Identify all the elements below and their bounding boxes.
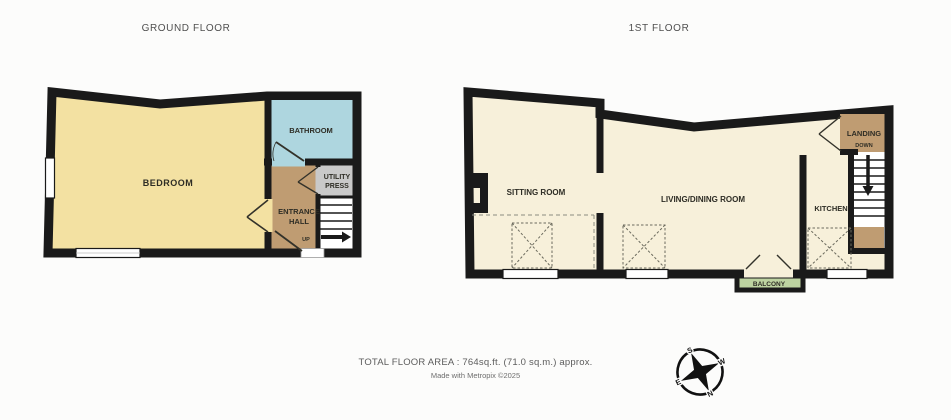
stairs-down-label: DOWN xyxy=(855,143,872,149)
living-room-window xyxy=(626,270,668,279)
sitting-room-label: SITTING ROOM xyxy=(507,188,566,197)
total-floor-area-text: TOTAL FLOOR AREA : 764sq.ft. (71.0 sq.m.… xyxy=(0,357,951,368)
landing-label: LANDING xyxy=(847,129,881,138)
stairs-winder xyxy=(854,227,884,251)
stairs-up-label: UP xyxy=(302,237,310,243)
credit-text: Made with Metropix ©2025 xyxy=(0,371,951,380)
floorplan-page: GROUND FLOOR 1ST FLOOR xyxy=(0,0,951,420)
bathroom-label: BATHROOM xyxy=(289,126,333,135)
first-floor-title: 1ST FLOOR xyxy=(629,23,690,34)
utility-press-label-line1: UTILITY xyxy=(324,174,351,181)
sitting-room-window xyxy=(503,270,558,279)
entrance-hall-room xyxy=(265,162,319,249)
living-dining-label: LIVING/DINING ROOM xyxy=(661,195,745,204)
balcony-label: BALCONY xyxy=(753,281,786,288)
entrance-hall-label-line2: HALL xyxy=(289,217,309,226)
kitchen-window xyxy=(827,270,867,279)
kitchen-label: KITCHEN xyxy=(814,204,847,213)
ground-floor-title: GROUND FLOOR xyxy=(142,23,231,34)
bedroom-side-window xyxy=(46,158,55,198)
ground-floor-plan: BEDROOM BATHROOM ENTRANCE HALL UTILITY P… xyxy=(38,82,374,264)
entrance-hall-label-line1: ENTRANCE xyxy=(278,207,320,216)
bedroom-label: BEDROOM xyxy=(143,178,194,188)
utility-press-label-line2: PRESS xyxy=(325,183,349,190)
first-floor-plan: SITTING ROOM LIVING/DINING ROOM KITCHEN … xyxy=(452,82,904,298)
